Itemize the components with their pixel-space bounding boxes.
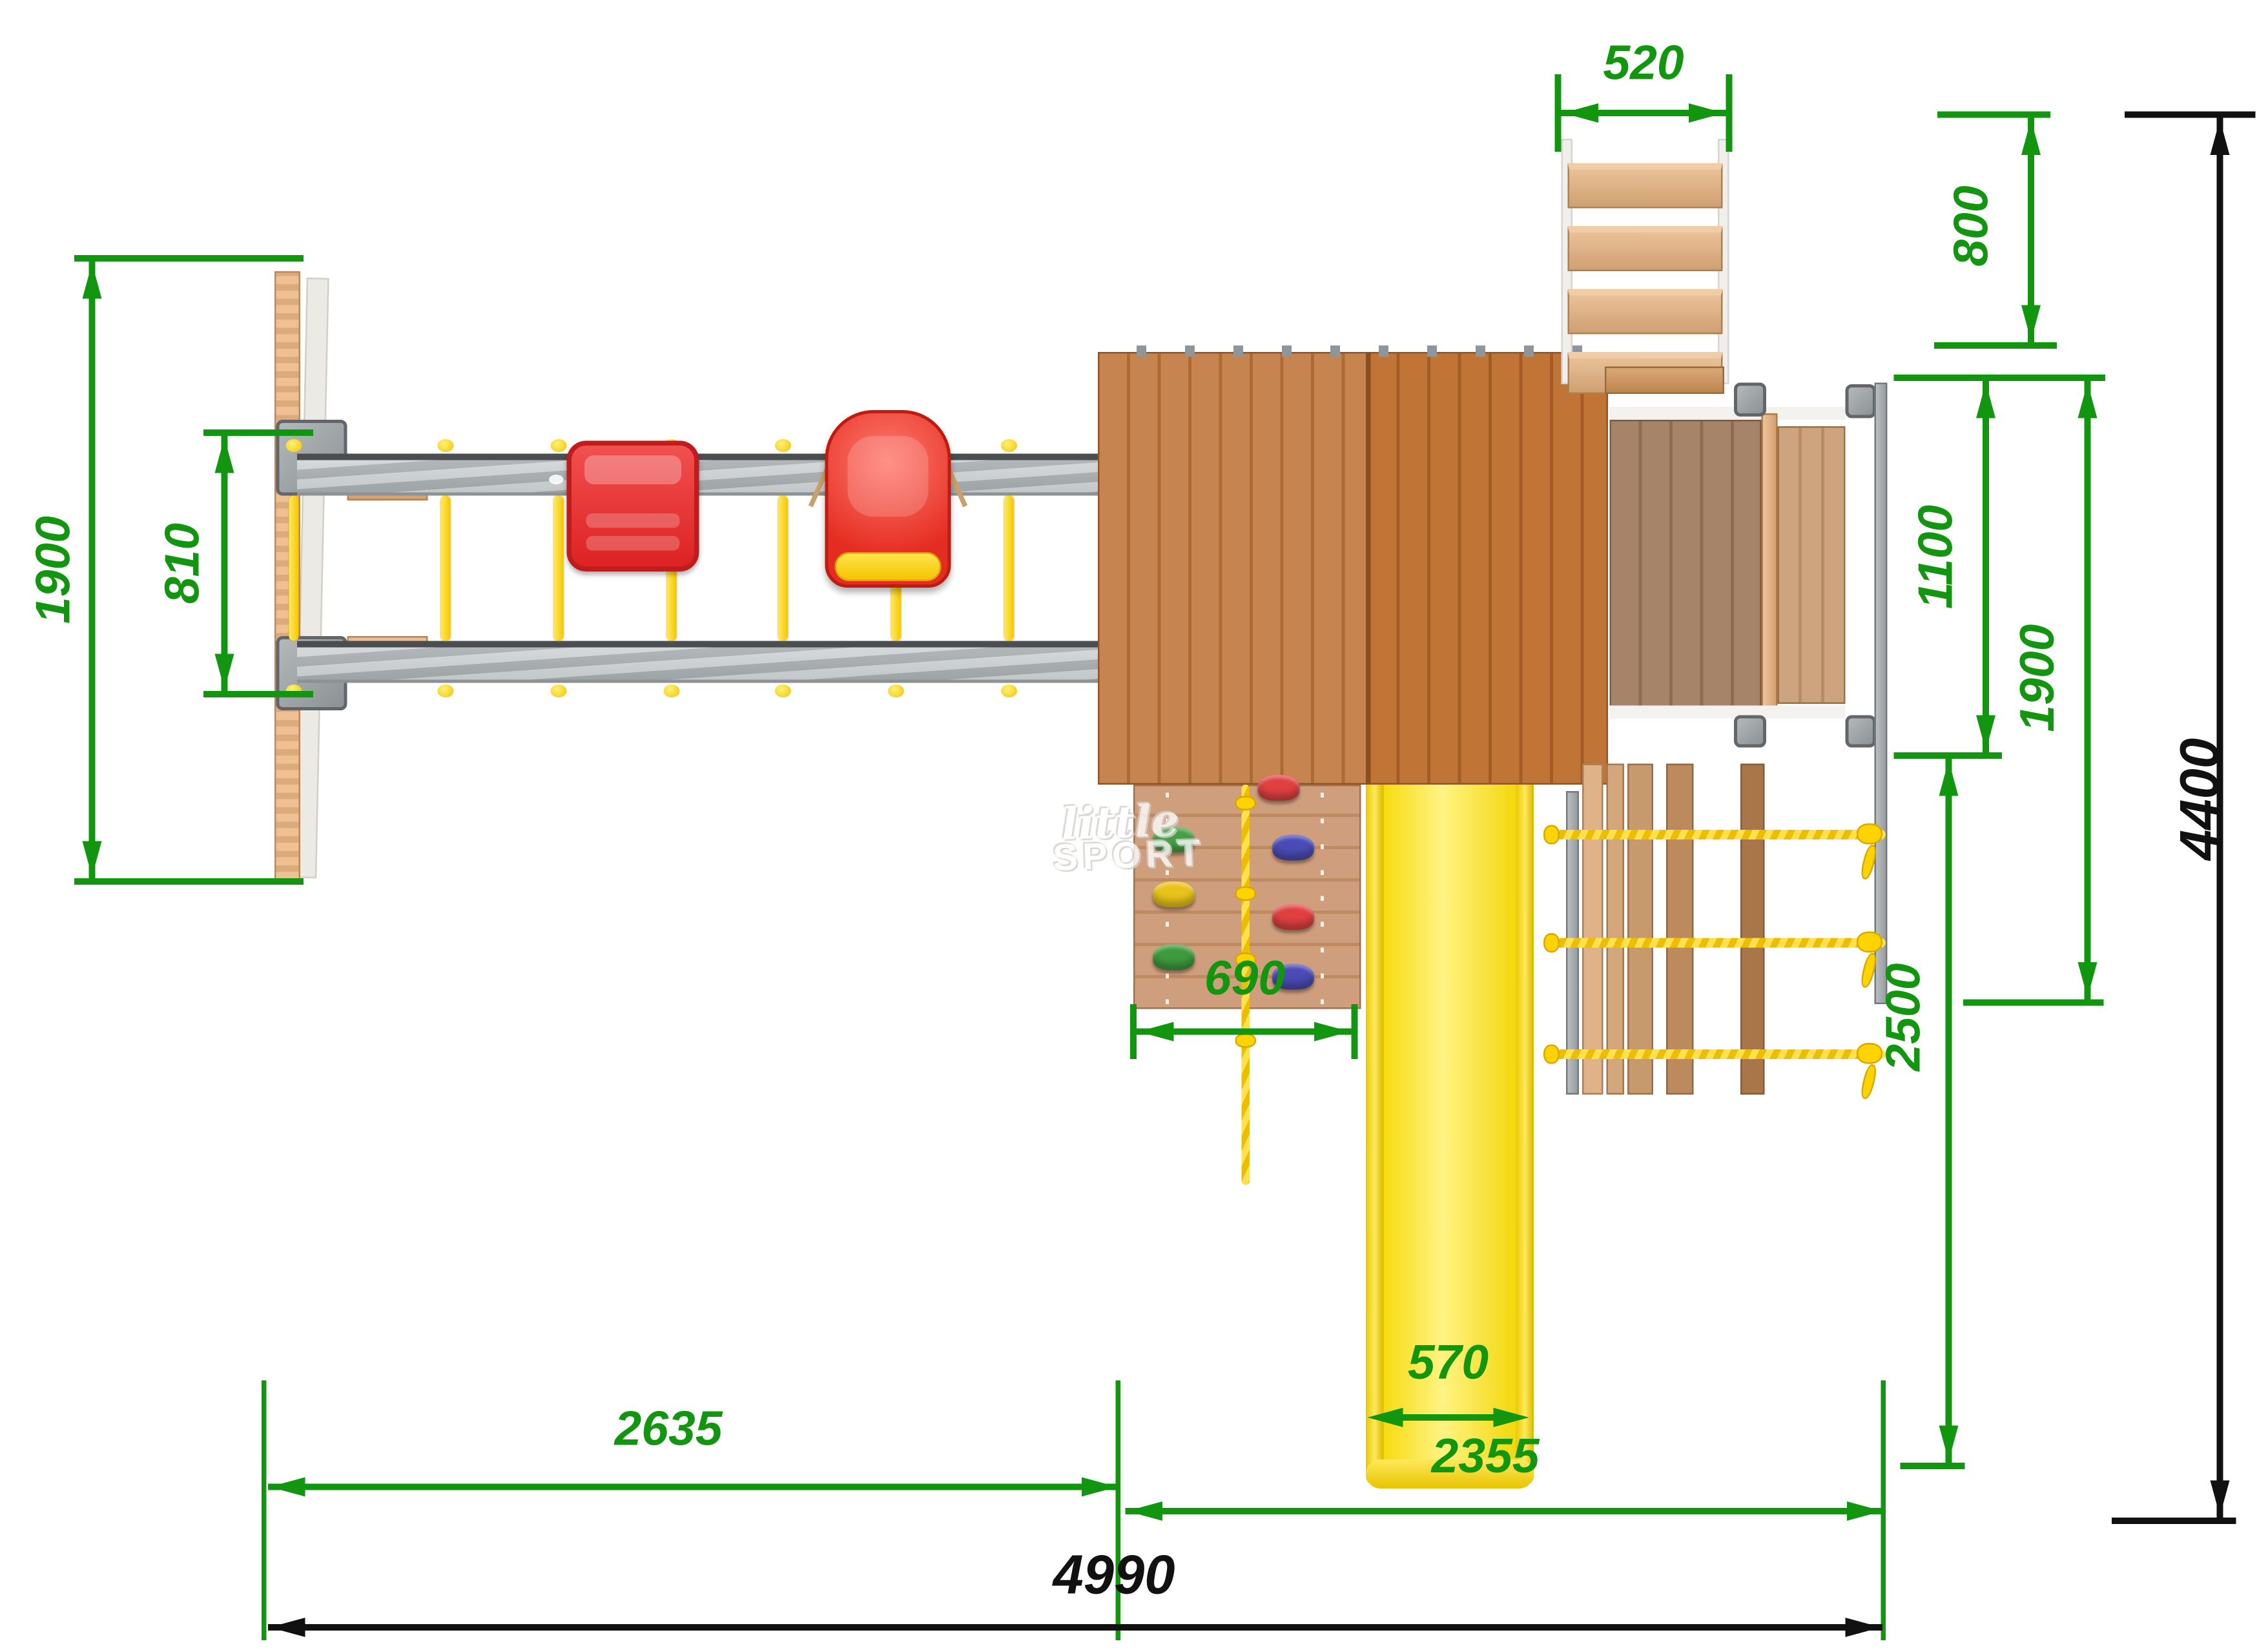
net-slat (1607, 764, 1625, 1095)
deck-front-beam (1605, 367, 1724, 395)
bolt-cap (664, 685, 680, 697)
bolt-cap (1001, 439, 1017, 452)
bolt-cap (775, 439, 791, 452)
beam-hole (549, 475, 564, 484)
dim-label-520: 520 (1603, 41, 1684, 89)
dim-label-4400: 4400 (2173, 738, 2228, 860)
swing-strut (289, 496, 299, 641)
climb-hold-yellow (1153, 881, 1195, 907)
deck-edge-board (1762, 413, 1778, 717)
bolt-cap (438, 439, 454, 452)
deck-trim-bottom (1610, 706, 1846, 719)
flat-swing-slat (586, 536, 680, 551)
net-rope (1553, 938, 1886, 948)
climb-hold-blue (1272, 835, 1314, 861)
climbing-rope (1242, 785, 1250, 1185)
net-slat (1627, 764, 1653, 1095)
dim-label-2500: 2500 (1881, 963, 1930, 1071)
swing-beam-rear (297, 641, 1100, 683)
bolt-cap (286, 439, 302, 452)
net-knot (1857, 823, 1882, 845)
roof-ridge-clips (1098, 345, 1608, 357)
swing-strut (441, 496, 451, 641)
net-slat (1740, 764, 1765, 1095)
slide-end-cap (1366, 1459, 1534, 1488)
stair-step (1568, 226, 1723, 271)
net-knot (1857, 1043, 1882, 1064)
platform-deck-light (1778, 426, 1846, 704)
net-knot-tail (1859, 1063, 1879, 1100)
dim-label-1900-right: 1900 (2015, 624, 2063, 732)
bolt-cap (888, 685, 904, 697)
dim-label-810: 810 (160, 523, 209, 604)
deck-post (1846, 716, 1877, 748)
bucket-swing-seat (835, 552, 942, 581)
roof-seam (1366, 352, 1371, 785)
slide-bed (1376, 785, 1524, 1476)
net-slat (1582, 764, 1603, 1095)
dim-label-2635: 2635 (615, 1406, 723, 1455)
flat-swing-seat (567, 441, 699, 572)
climb-hold-green (1153, 827, 1195, 852)
rope-knot (1235, 796, 1257, 811)
climbing-wall-screws (1321, 791, 1324, 1004)
deck-post (1846, 384, 1877, 418)
rope-knot (1235, 953, 1257, 967)
tower-roof-right-panel (1369, 354, 1607, 783)
dim-label-1100: 1100 (1913, 505, 1962, 609)
bolt-cap (775, 685, 791, 697)
net-knot (1543, 933, 1560, 953)
swing-strut (778, 496, 788, 641)
climb-hold-red (1272, 904, 1314, 930)
playground-top-view: little SPORT 520 800 1100 1900 (0, 0, 2268, 1648)
net-knot (1543, 1045, 1560, 1064)
stair-step (1568, 289, 1723, 335)
climb-hold-green (1153, 945, 1195, 971)
net-knot (1543, 825, 1560, 845)
net-knot (1857, 932, 1882, 953)
climb-hold-blue (1272, 964, 1314, 990)
flat-swing-top-detail (584, 455, 681, 484)
deck-trim-top (1610, 407, 1846, 420)
dim-label-1900-left: 1900 (31, 516, 79, 624)
deck-post (1734, 383, 1766, 417)
stair-step (1568, 163, 1723, 209)
drawing-canvas: little SPORT 520 800 1100 1900 (0, 0, 2268, 1648)
net-rope (1553, 1049, 1886, 1059)
dim-label-4990: 4990 (1053, 1549, 1175, 1603)
swing-strut (554, 496, 564, 641)
platform-right-rail (1875, 383, 1888, 1005)
swing-strut (1004, 496, 1014, 641)
climb-hold-red (1258, 775, 1300, 801)
dim-label-800: 800 (1949, 185, 1997, 266)
bucket-swing-back (848, 436, 929, 517)
bolt-cap (551, 685, 567, 697)
bolt-cap (551, 439, 567, 452)
bolt-cap (438, 685, 454, 697)
net-slat (1666, 764, 1694, 1095)
net-rope (1553, 830, 1886, 839)
rope-knot (1235, 887, 1257, 901)
slide-rail-left (1366, 785, 1384, 1485)
deck-post (1734, 716, 1766, 748)
bolt-cap (1001, 685, 1017, 697)
rope-knot (1235, 1033, 1257, 1048)
bolt-cap (286, 685, 302, 697)
flat-swing-slat (586, 513, 680, 528)
bucket-swing-shell (825, 410, 951, 588)
platform-deck-dark (1610, 420, 1762, 707)
slide-rail-right (1516, 785, 1534, 1485)
